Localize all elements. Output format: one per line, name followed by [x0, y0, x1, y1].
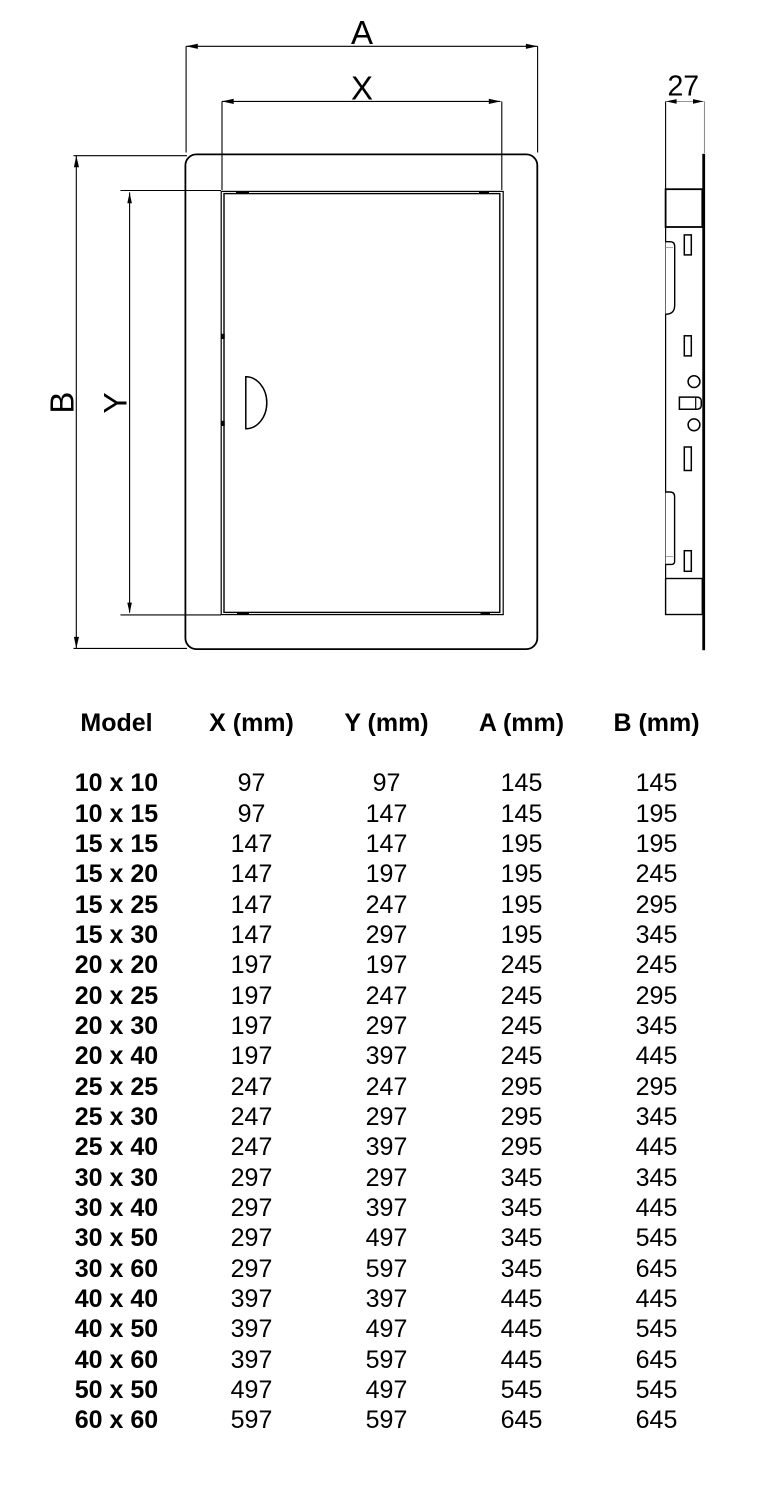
svg-text:27: 27: [667, 71, 699, 103]
svg-text:A: A: [351, 14, 373, 51]
svg-text:B: B: [44, 392, 81, 414]
svg-text:Y: Y: [97, 392, 133, 413]
svg-text:X: X: [351, 69, 373, 106]
